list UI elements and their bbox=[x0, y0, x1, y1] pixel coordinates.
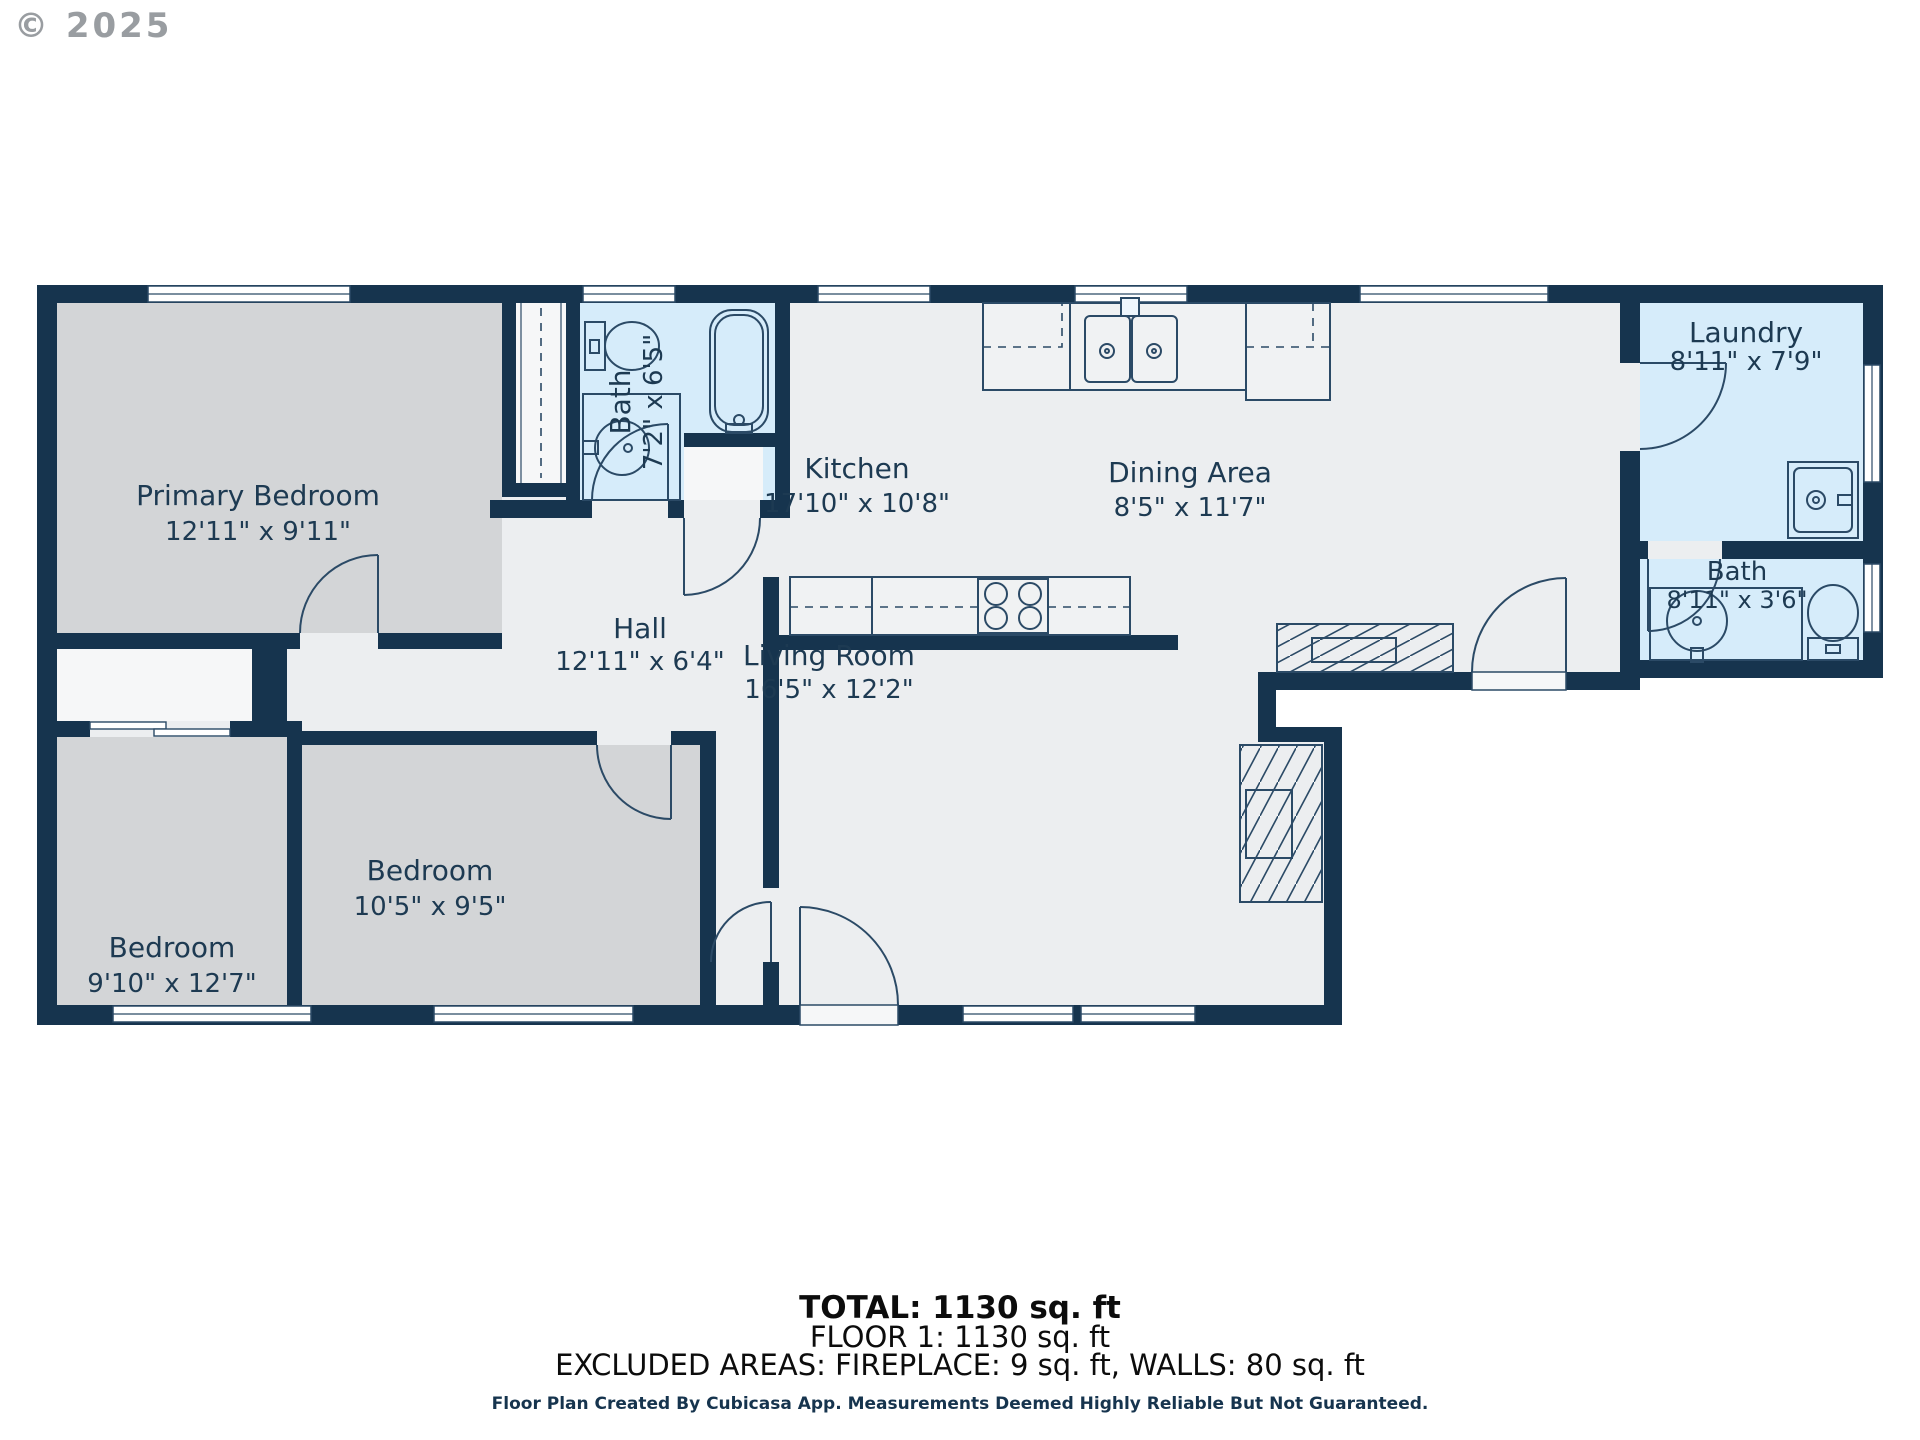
closet-linen bbox=[684, 447, 763, 500]
label-hall-name: Hall bbox=[613, 612, 667, 645]
fireplace-hearth bbox=[1277, 624, 1453, 672]
kitchen-counter-stove bbox=[790, 577, 1130, 635]
window bbox=[434, 1006, 633, 1022]
kitchen-counter-top bbox=[983, 298, 1330, 400]
window bbox=[113, 1006, 311, 1022]
window bbox=[1081, 1006, 1195, 1022]
label-bedroom-mid-dims: 10'5" x 9'5" bbox=[354, 892, 507, 922]
floor-areas bbox=[37, 285, 1883, 1025]
label-laundry-dims: 8'11" x 7'9" bbox=[1670, 347, 1823, 377]
label-bedroom-left-dims: 9'10" x 12'7" bbox=[87, 969, 256, 999]
room-bedroom-left bbox=[57, 737, 287, 1005]
label-hall-dims: 12'11" x 6'4" bbox=[555, 647, 724, 677]
label-bath-upper-dims: 7'2" x 6'5" bbox=[639, 334, 669, 470]
fireplace-chimney bbox=[1240, 745, 1322, 902]
window bbox=[583, 286, 675, 302]
label-bath-upper-name: Bath bbox=[604, 369, 637, 434]
label-living-name: Living Room bbox=[743, 639, 915, 672]
label-living-dims: 16'5" x 12'2" bbox=[744, 675, 913, 705]
label-bath-right-dims: 8'11" x 3'6" bbox=[1666, 586, 1807, 614]
label-kitchen-dims: 17'10" x 10'8" bbox=[764, 489, 950, 519]
label-dining-dims: 8'5" x 11'7" bbox=[1114, 493, 1267, 523]
excluded-areas-text: EXCLUDED AREAS: FIREPLACE: 9 sq. ft, WAL… bbox=[0, 1348, 1920, 1382]
room-primary-bedroom bbox=[57, 303, 502, 633]
label-bedroom-mid-name: Bedroom bbox=[367, 854, 494, 887]
label-kitchen-name: Kitchen bbox=[804, 452, 909, 485]
label-primary-dims: 12'11" x 9'11" bbox=[165, 517, 351, 547]
window bbox=[1360, 286, 1548, 302]
window bbox=[1864, 564, 1880, 632]
room-bedroom-mid bbox=[302, 745, 700, 1005]
label-bedroom-left-name: Bedroom bbox=[109, 931, 236, 964]
label-dining-name: Dining Area bbox=[1108, 456, 1272, 489]
closet-bedroom-left bbox=[57, 649, 252, 721]
label-bath-right-name: Bath bbox=[1707, 557, 1767, 587]
label-laundry-name: Laundry bbox=[1689, 316, 1803, 349]
window bbox=[1864, 365, 1880, 482]
floor-plan-drawing: Primary Bedroom 12'11" x 9'11" Bath 7'2"… bbox=[0, 0, 1920, 1440]
window bbox=[148, 286, 350, 302]
window bbox=[963, 1006, 1073, 1022]
floor-plan-page: © 2025 bbox=[0, 0, 1920, 1440]
disclaimer-text: Floor Plan Created By Cubicasa App. Meas… bbox=[0, 1394, 1920, 1414]
exterior-notch bbox=[1276, 690, 1342, 727]
window bbox=[818, 286, 930, 302]
label-primary-name: Primary Bedroom bbox=[136, 479, 380, 512]
